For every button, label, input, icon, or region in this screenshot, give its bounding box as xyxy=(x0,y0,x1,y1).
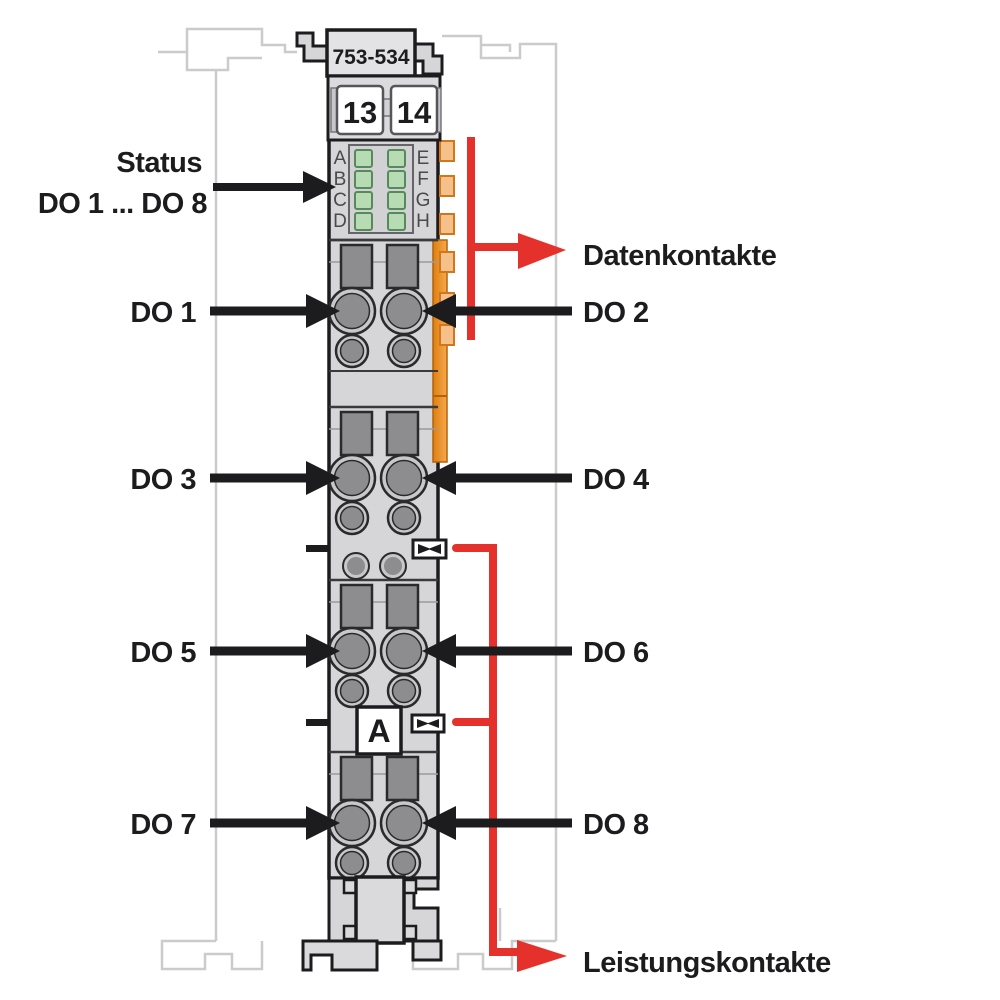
label-do7: DO 7 xyxy=(130,809,196,841)
label-status: Status xyxy=(116,147,202,179)
red-contact-lines xyxy=(456,137,567,972)
foot-base-plate xyxy=(303,941,377,970)
arrow-do4 xyxy=(422,461,572,495)
jumper-mark xyxy=(306,719,330,726)
led-indicator-f xyxy=(388,171,405,188)
led-indicator-d xyxy=(355,213,372,230)
label-do1: DO 1 xyxy=(130,297,196,329)
adjacent-module-outline-top-right xyxy=(442,36,556,941)
led-indicator-g xyxy=(388,192,405,209)
jumper-mark xyxy=(306,545,329,552)
label-do2: DO 2 xyxy=(583,297,649,329)
arrow-status xyxy=(213,171,336,203)
top-cap-right-hook xyxy=(415,44,442,74)
led-indicator-e xyxy=(388,150,405,167)
label-do6: DO 6 xyxy=(583,637,649,669)
adjacent-module-outline-top-left xyxy=(158,29,297,52)
led-label-g: G xyxy=(416,190,431,211)
adjacent-module-outline-top-right-step xyxy=(481,45,510,52)
module-diagram: 753-534 13 14 A B C D E F xyxy=(0,0,1000,1000)
led-indicator-b xyxy=(355,171,372,188)
adjacent-module-outline-bottom-left xyxy=(162,941,262,969)
led-label-h: H xyxy=(416,211,430,232)
foot-center-block xyxy=(356,877,404,943)
terminal-13-label: 13 xyxy=(343,95,377,130)
jumper-contact-circle-inner xyxy=(347,557,365,575)
data-contact-tab xyxy=(440,176,454,196)
terminal-14-label: 14 xyxy=(397,95,432,130)
data-contact-tab xyxy=(440,325,454,345)
jumper-contact-circle-inner xyxy=(384,557,402,575)
arrow-do5 xyxy=(210,634,340,668)
foot-base-right xyxy=(413,941,441,960)
led-label-c: C xyxy=(333,190,347,211)
label-status-range: DO 1 ... DO 8 xyxy=(38,188,208,220)
led-label-f: F xyxy=(417,169,429,190)
data-contact-tab xyxy=(440,141,454,161)
arrow-do3 xyxy=(210,461,340,495)
led-indicator-c xyxy=(355,192,372,209)
part-number-text: 753-534 xyxy=(332,46,409,69)
led-indicator-a xyxy=(355,150,372,167)
label-do4: DO 4 xyxy=(583,464,649,496)
arrow-do7 xyxy=(210,806,340,840)
data-contact-tab xyxy=(440,252,454,272)
marking-label-text: A xyxy=(367,713,390,749)
power-contacts-line xyxy=(456,548,517,952)
led-label-d: D xyxy=(333,211,347,232)
data-contact-tab xyxy=(440,214,454,234)
data-contacts-arrowhead xyxy=(518,233,566,269)
label-do3: DO 3 xyxy=(130,464,196,496)
diagram-canvas: 753-534 13 14 A B C D E F xyxy=(0,0,1000,1000)
led-label-e: E xyxy=(417,148,430,169)
top-cap-left-hook xyxy=(297,33,327,61)
label-power-contacts: Leistungskontakte xyxy=(583,947,831,979)
label-data-contacts: Datenkontakte xyxy=(583,240,777,272)
adjacent-module-outline-top-left-step xyxy=(187,52,262,70)
label-do5: DO 5 xyxy=(130,637,196,669)
label-do8: DO 8 xyxy=(583,809,649,841)
led-label-a: A xyxy=(334,148,347,169)
power-contacts-arrowhead xyxy=(517,940,567,972)
arrow-do1 xyxy=(210,294,340,328)
led-indicator-h xyxy=(388,213,405,230)
